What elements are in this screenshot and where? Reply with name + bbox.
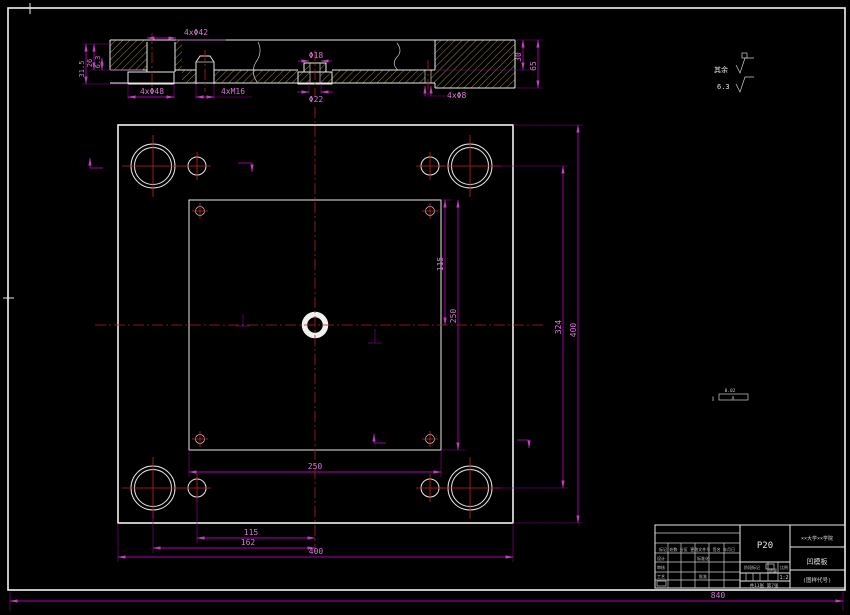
dim-step-depth: 30	[514, 52, 523, 62]
dim-guide-hole-span: 324	[554, 320, 563, 335]
surface-roughness-note: 其余 6.3	[714, 53, 754, 92]
parallelism-symbol: ∥	[712, 396, 714, 402]
gdt-note: 0.02 ∥ A	[712, 388, 748, 402]
dim-left-depth-total: 31.5	[78, 61, 86, 78]
revision-header-row: 标记 处数 分区 更改文件号 签名 年月日	[659, 546, 735, 552]
title-block: P20 ××大学××学院 凹模板 (图样代号) 阶段标记 质量 比例 1:2 共…	[655, 525, 845, 589]
company-name: ××大学××学院	[801, 535, 833, 542]
dim-plate-width: 400	[309, 547, 324, 556]
stage-label: 阶段标记	[744, 564, 760, 570]
material-value: P20	[757, 541, 773, 551]
dim-pocket-width: 250	[308, 462, 323, 471]
section-view	[110, 33, 515, 97]
plan-view	[90, 107, 543, 553]
scale-label: 比例	[780, 564, 788, 570]
drawing-code: (图样代号)	[803, 576, 832, 584]
roughness-value: 6.3	[717, 83, 730, 91]
dim-center-hole-top: Φ18	[309, 51, 324, 60]
dim-hole-offset-vertical: 115	[436, 257, 445, 272]
dim-guide-hole-offset: 162	[241, 538, 256, 547]
dim-counterbore-top: 4xΦ42	[184, 28, 208, 37]
scale-value: 1:2	[779, 575, 788, 581]
role-approve: 批准	[699, 573, 707, 579]
centerlines	[95, 107, 543, 553]
gdt-datum: A	[732, 396, 735, 402]
roughness-label: 其余	[714, 65, 728, 74]
dim-sheet-width: 840	[711, 591, 726, 600]
guide-holes	[131, 144, 492, 510]
gdt-value-top: 0.02	[725, 388, 736, 394]
dim-screw-holes: 4xM16	[221, 87, 245, 96]
dim-thickness: 65	[529, 61, 538, 71]
sheet-dimension: 840	[10, 591, 843, 611]
role-check: 审核	[657, 564, 665, 570]
weight-label: 质量	[769, 567, 777, 573]
cad-drawing-canvas: 4xΦ42 4xΦ48 4xM16 Φ18 Φ22 4xΦ8 30 65	[0, 0, 850, 615]
dim-pocket-height: 250	[449, 309, 458, 324]
dim-hole-offset-horizontal: 115	[244, 528, 259, 537]
dim-center-hole-bottom: Φ22	[309, 95, 324, 104]
sheet-count-note: 共11张 第7张	[750, 582, 779, 589]
role-design: 设计	[657, 555, 665, 561]
role-process: 工艺	[657, 574, 665, 579]
section-cut-marks	[90, 158, 529, 448]
dim-small-holes: 4xΦ8	[447, 91, 466, 100]
part-name: 凹模板	[807, 557, 828, 566]
dim-left-depth-bore: 26	[86, 59, 94, 67]
dim-counterbore-bottom: 4xΦ48	[140, 87, 164, 96]
dim-left-depth-step: 6.3	[94, 56, 102, 69]
dim-plate-height: 400	[569, 323, 578, 338]
roughness-symbol-icon	[736, 77, 754, 92]
return-pin-holes	[188, 157, 439, 497]
role-standard: 标准化	[697, 555, 709, 561]
cad-sheet: 4xΦ42 4xΦ48 4xM16 Φ18 Φ22 4xΦ8 30 65	[0, 0, 850, 615]
roughness-symbol-machined-icon	[736, 53, 754, 73]
sheet-border	[3, 3, 845, 590]
